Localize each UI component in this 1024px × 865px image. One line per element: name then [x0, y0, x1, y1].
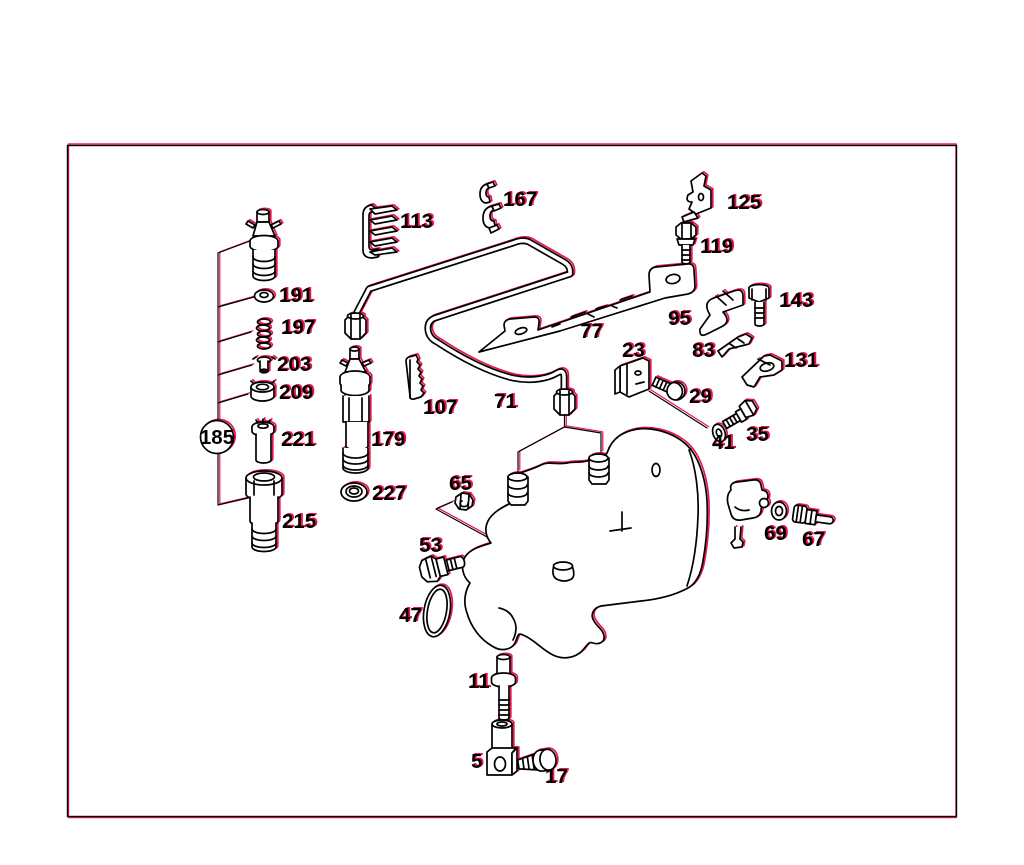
- parts-diagram-svg: 185 167 113 125 119 143 95 83 131 77 23 …: [0, 0, 1024, 865]
- diagram-canvas: 185 167 113 125 119 143 95 83 131 77 23 …: [0, 0, 1024, 865]
